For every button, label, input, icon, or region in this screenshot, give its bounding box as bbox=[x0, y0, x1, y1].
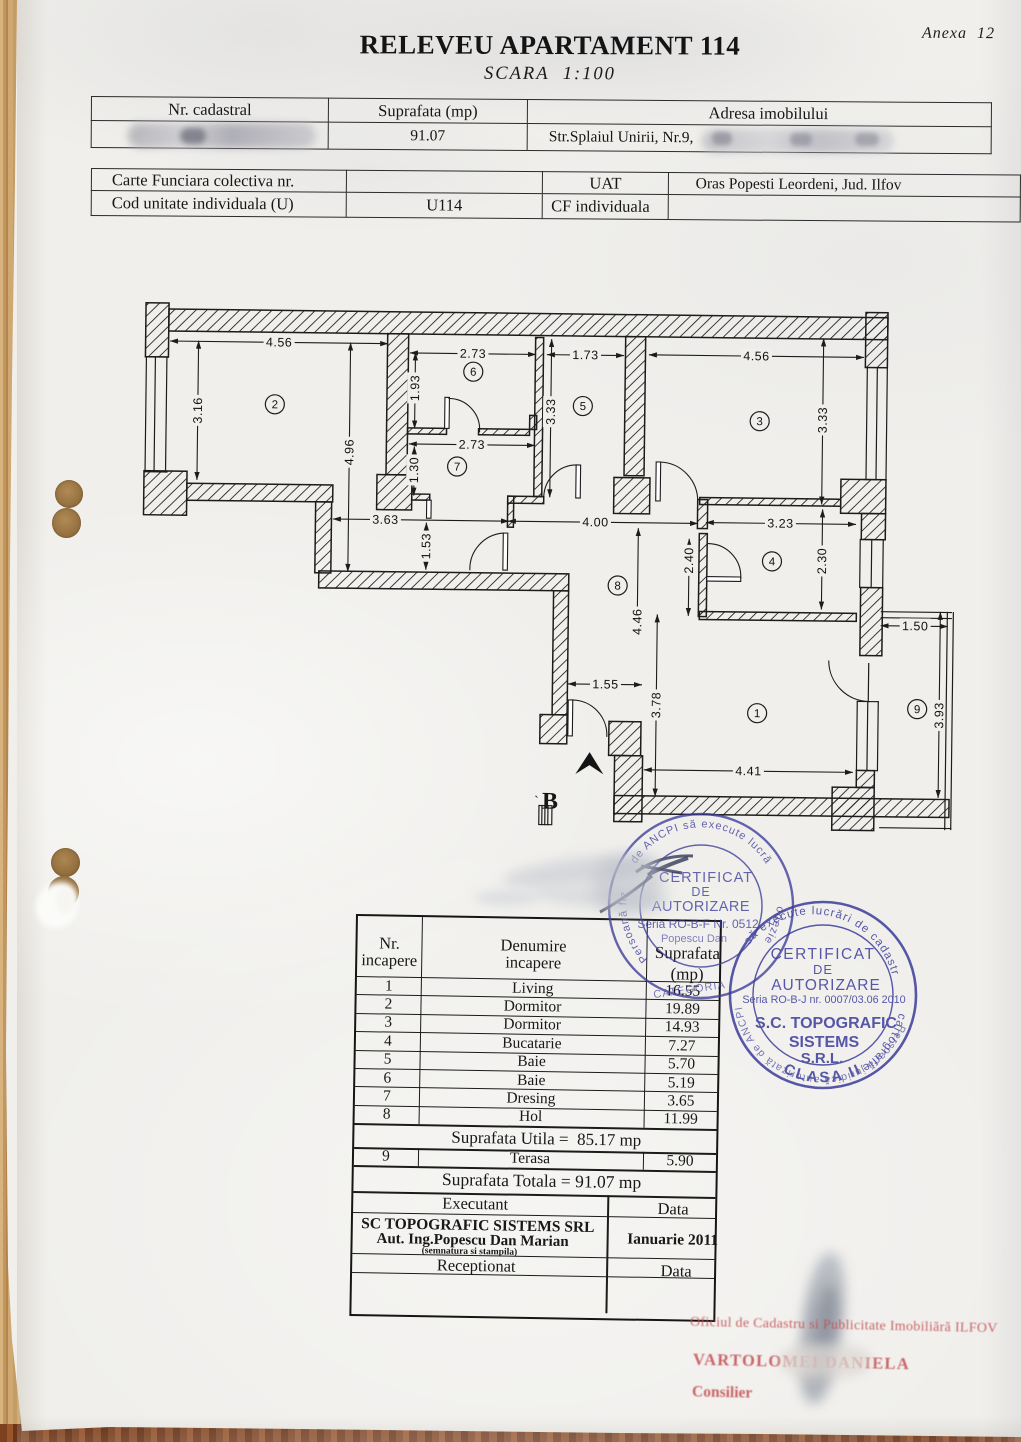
svg-text:Popescu Dan: Popescu Dan bbox=[661, 933, 727, 945]
svg-text:DE: DE bbox=[691, 885, 710, 899]
svg-text:AUTORIZARE: AUTORIZARE bbox=[652, 899, 750, 915]
svg-text:de ANCPI să execute lucrări de: de ANCPI să execute lucrări de cadastru,… bbox=[0, 0, 774, 866]
svg-text:S.C. TOPOGRAFIC: S.C. TOPOGRAFIC bbox=[755, 1015, 897, 1032]
svg-text:să execute lucrări de cadastru: să execute lucrări de cadastru, geodezie… bbox=[0, 0, 901, 977]
svg-text:CERTIFICAT: CERTIFICAT bbox=[771, 946, 876, 963]
svg-text:Persoană fizică: Persoană fizică bbox=[0, 0, 650, 965]
svg-text:AUTORIZARE: AUTORIZARE bbox=[771, 977, 881, 994]
svg-text:DE: DE bbox=[813, 962, 833, 977]
svg-text:Seria RO-B-F Nr. 0512: Seria RO-B-F Nr. 0512 bbox=[637, 917, 759, 931]
svg-text:Seria RO-B-J nr. 0007/03.06 20: Seria RO-B-J nr. 0007/03.06 2010 bbox=[742, 994, 905, 1006]
svg-text:S.R.L.: S.R.L. bbox=[801, 1050, 844, 1067]
svg-text:SISTEMS: SISTEMS bbox=[789, 1034, 860, 1051]
